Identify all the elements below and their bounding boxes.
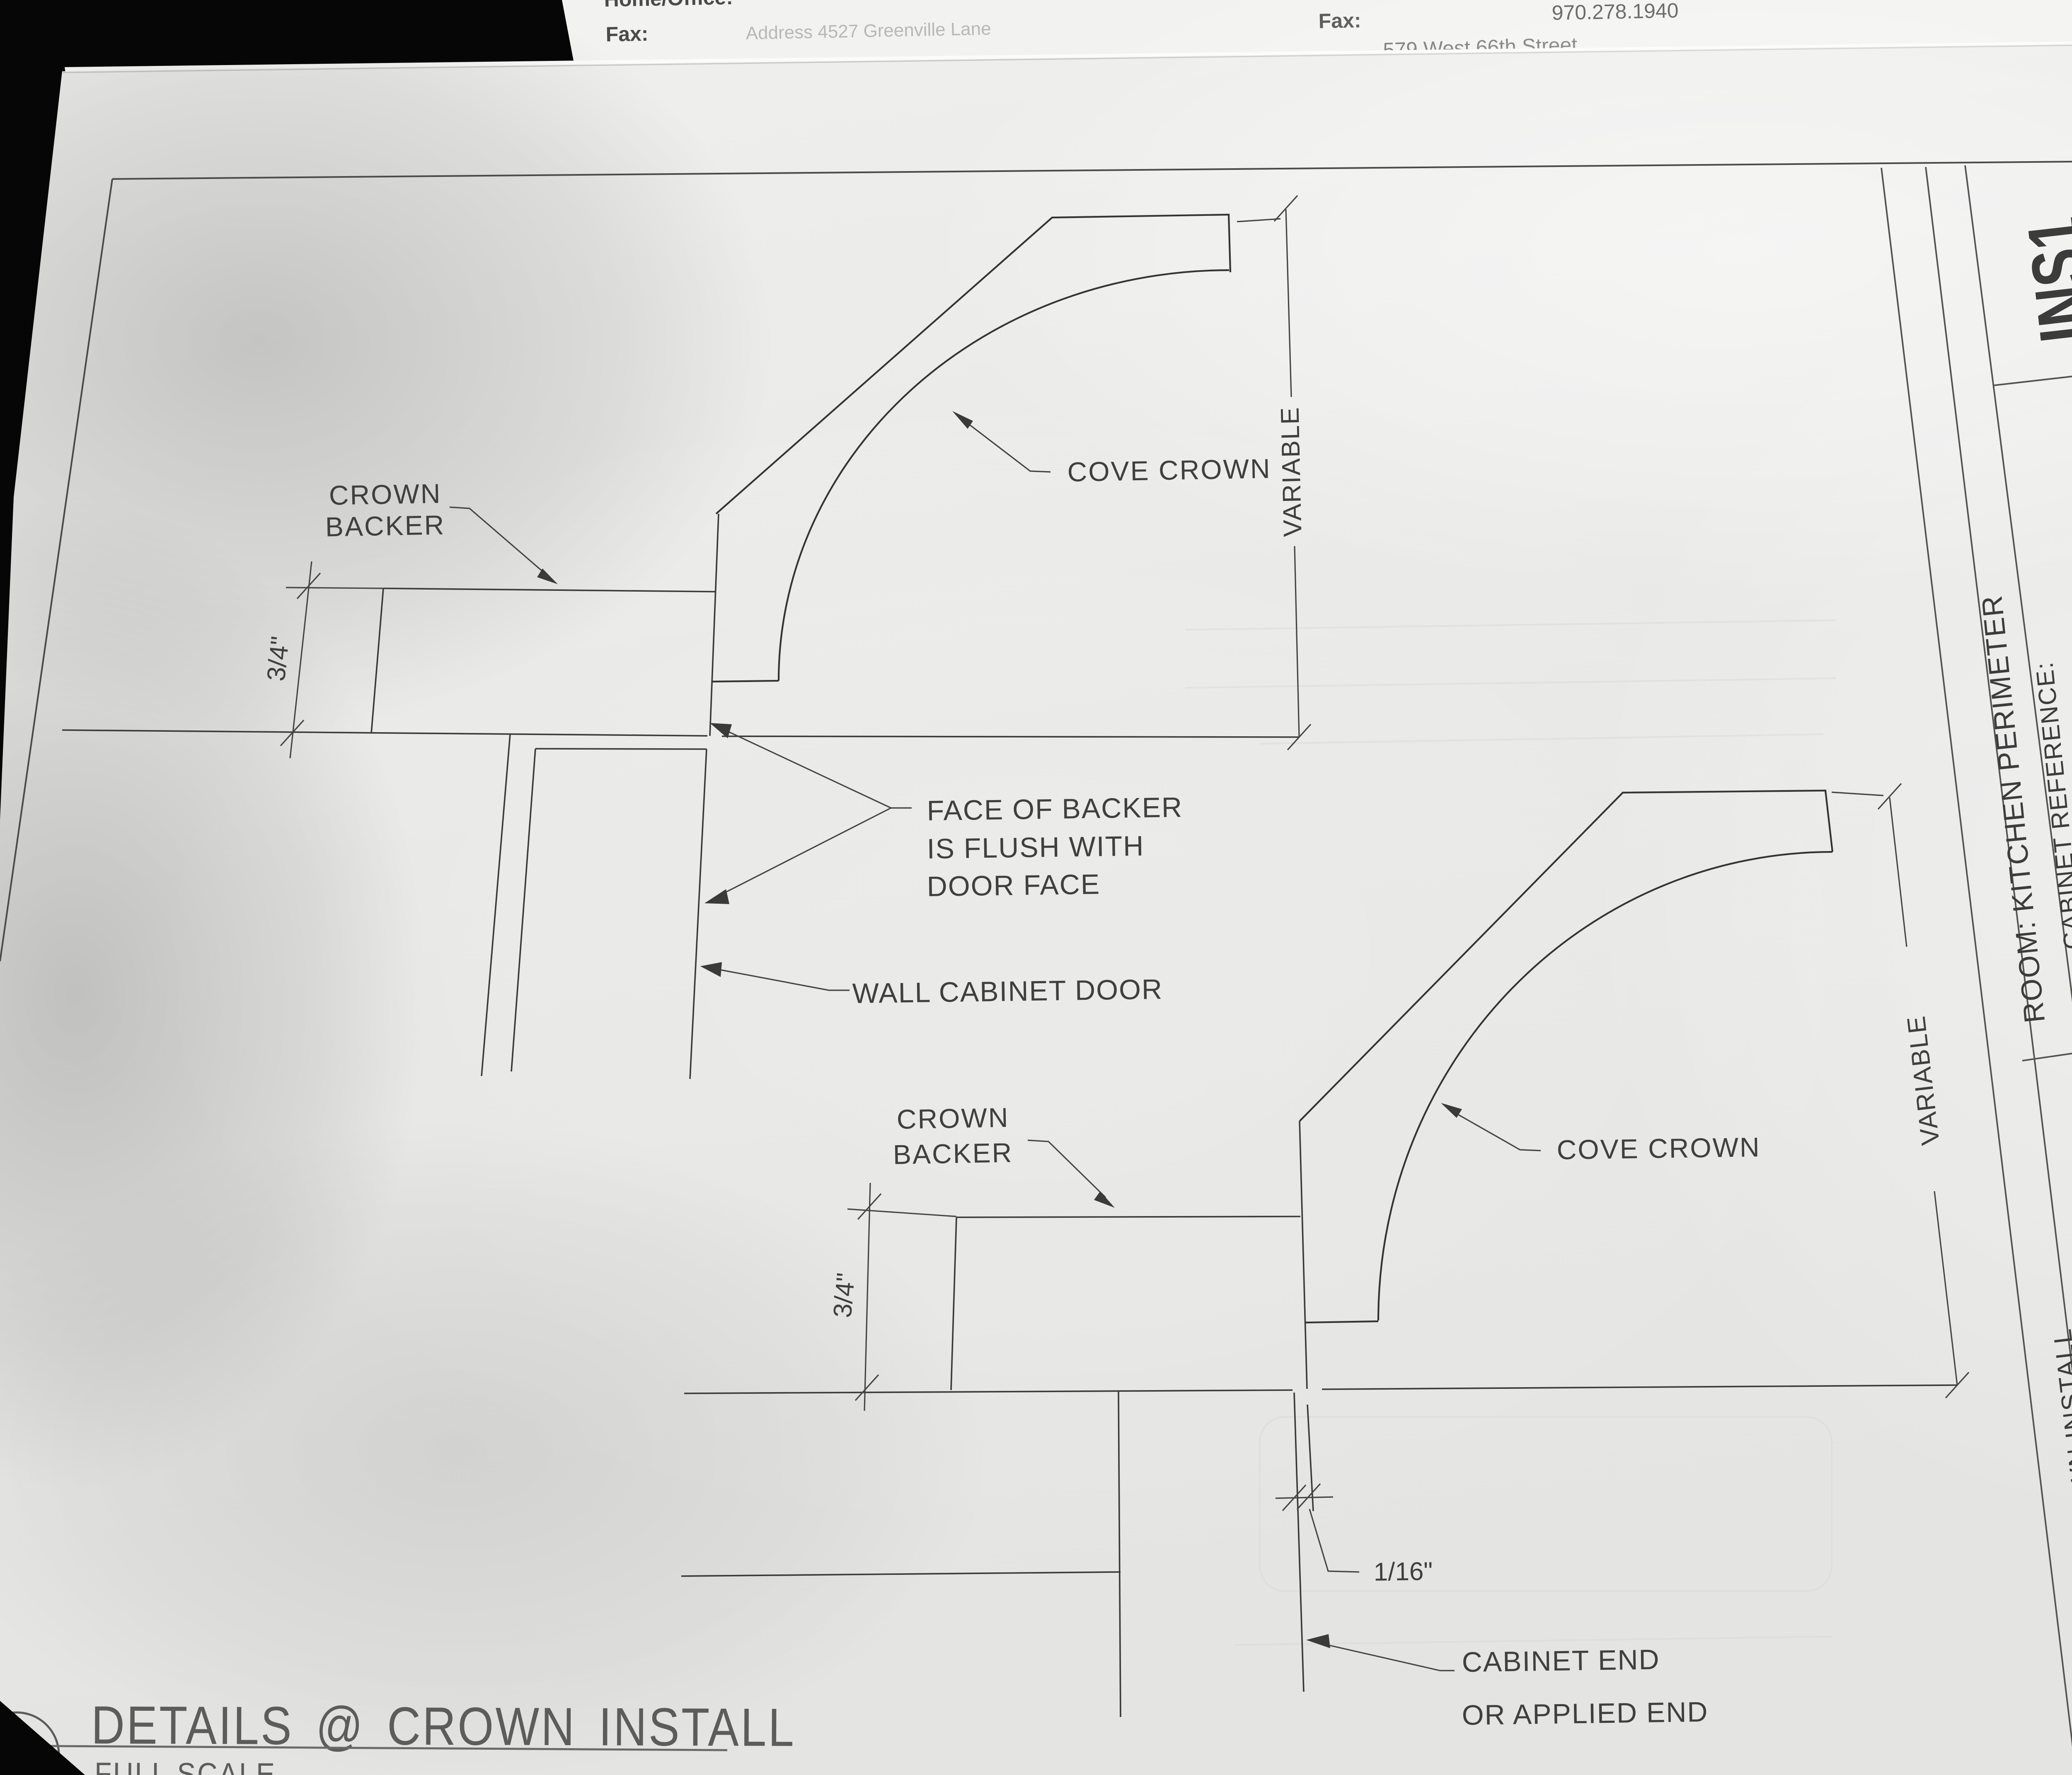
svg-text:3/4": 3/4" [828, 1272, 860, 1319]
svg-text:WALL CABINET DOOR: WALL CABINET DOOR [852, 974, 1163, 1009]
svg-text:3/4": 3/4" [262, 635, 295, 682]
svg-text:VARIABLE: VARIABLE [1276, 406, 1307, 537]
svg-text:COVE CROWN: COVE CROWN [1067, 453, 1271, 487]
svg-text:FULL SCALE: FULL SCALE [94, 1756, 276, 1775]
svg-text:Fax:: Fax: [605, 22, 649, 46]
svg-text:DOOR FACE: DOOR FACE [927, 868, 1101, 902]
svg-text:CROWN: CROWN [896, 1102, 1009, 1135]
svg-text:FACE OF BACKER: FACE OF BACKER [927, 791, 1183, 827]
svg-text:BACKER: BACKER [325, 509, 445, 542]
svg-text:COVE CROWN: COVE CROWN [1556, 1132, 1761, 1165]
svg-text:CABINET END: CABINET END [1462, 1644, 1660, 1678]
svg-text:IS FLUSH WITH: IS FLUSH WITH [927, 830, 1145, 865]
svg-text:1/16": 1/16" [1373, 1557, 1433, 1586]
svg-text:CROWN: CROWN [329, 478, 442, 511]
svg-text:BACKER: BACKER [893, 1137, 1013, 1170]
svg-text:OR APPLIED END: OR APPLIED END [1462, 1696, 1709, 1731]
